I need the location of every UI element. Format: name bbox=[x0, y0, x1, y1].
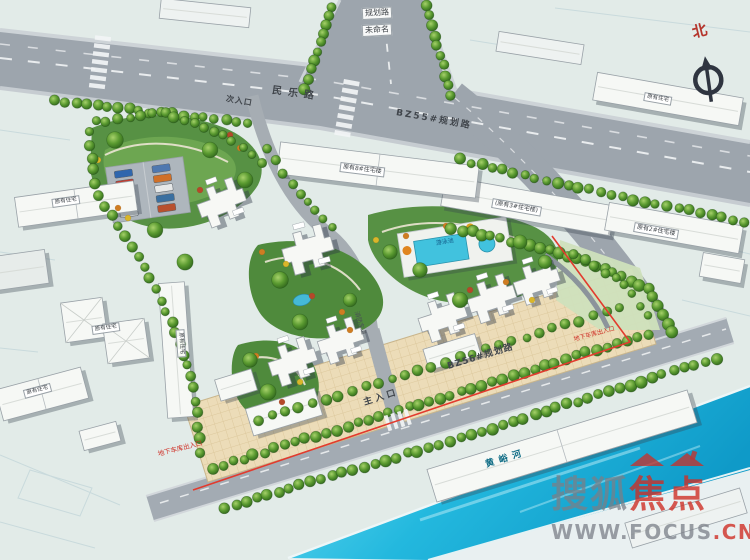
compass-icon bbox=[678, 38, 740, 110]
branch-road-label-2: 未命名 bbox=[362, 23, 393, 37]
watermark-brand-red: 焦点 bbox=[629, 464, 707, 518]
watermark-brand-gray: 搜狐 bbox=[551, 464, 629, 518]
existing-w4-label: 原有住宅 bbox=[176, 329, 187, 358]
watermark-url: WWW.FOCUS bbox=[551, 520, 713, 544]
watermark-url-suffix: .CN bbox=[713, 520, 750, 544]
watermark: 搜狐焦点 WWW.FOCUS.CN bbox=[551, 464, 750, 544]
branch-road-label-1: 规划路 bbox=[362, 6, 393, 20]
site-plan-canvas: 规划路 未命名 民乐路 BZ55#规划路 次入口 原有8#住宅楼 (原有3#住宅… bbox=[0, 0, 750, 560]
north-arrow: 北 bbox=[678, 20, 740, 112]
roof-icon bbox=[670, 453, 704, 466]
roof-icon bbox=[630, 453, 664, 466]
